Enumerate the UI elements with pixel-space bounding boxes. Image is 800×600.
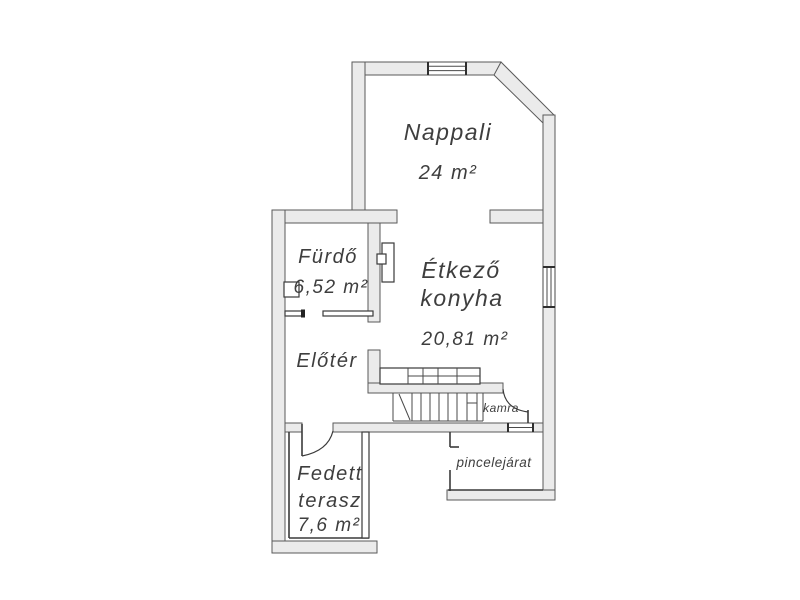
room-label-furdo: Fürdő [298, 246, 358, 268]
floorplan-drawing: Nappali 24 m² Fürdő 6,52 m² Étkező konyh… [0, 0, 800, 600]
staircase-icon [393, 393, 483, 421]
wall-low-row-a [285, 423, 302, 432]
room-label-etkezo-line1: Étkező [421, 257, 500, 283]
wall-mid-row-left [272, 210, 397, 223]
room-label-pincelejarat: pincelejárat [455, 455, 532, 470]
room-labels: Nappali 24 m² Fürdő 6,52 m² Étkező konyh… [294, 119, 533, 536]
room-area-etkezo: 20,81 m² [421, 329, 509, 350]
window-icon-right [543, 267, 555, 307]
room-label-terasz-line2: terasz [298, 490, 361, 512]
room-label-eloter: Előtér [296, 350, 357, 372]
wall-low-row-b [333, 423, 508, 432]
window-icon-top [428, 62, 466, 75]
partition-furdo-left [285, 311, 302, 316]
room-label-nappali: Nappali [404, 119, 493, 145]
radiator-valve-icon [377, 254, 386, 264]
wall-right-lower [543, 307, 555, 500]
wall-bottom-right [447, 490, 555, 500]
floorplan-page: Nappali 24 m² Fürdő 6,52 m² Étkező konyh… [0, 0, 800, 600]
kitchen-counter-icon [380, 368, 480, 384]
wall-nappali-left [352, 62, 365, 211]
room-area-furdo: 6,52 m² [294, 277, 369, 298]
wall-left-outer [272, 210, 285, 553]
room-area-nappali: 24 m² [418, 162, 478, 184]
wall-chamfer [494, 62, 555, 123]
room-label-terasz-line1: Fedett [297, 463, 363, 485]
room-area-terasz: 7,6 m² [298, 515, 361, 536]
wall-low-row-c [533, 423, 543, 432]
door-icon-terrace [302, 424, 333, 456]
room-label-kamra: kamra [483, 401, 519, 415]
wall-furdo-right [368, 223, 380, 322]
door-jamb [301, 310, 305, 318]
partition-furdo-right [323, 311, 373, 316]
terrace-wall-right [362, 432, 369, 538]
wall-terrace-bottom [272, 541, 377, 553]
room-label-etkezo-line2: konyha [420, 285, 503, 311]
window-icon-kamra [508, 423, 533, 432]
wall-right-upper [543, 115, 555, 267]
wall-mid-row-stub [490, 210, 543, 223]
